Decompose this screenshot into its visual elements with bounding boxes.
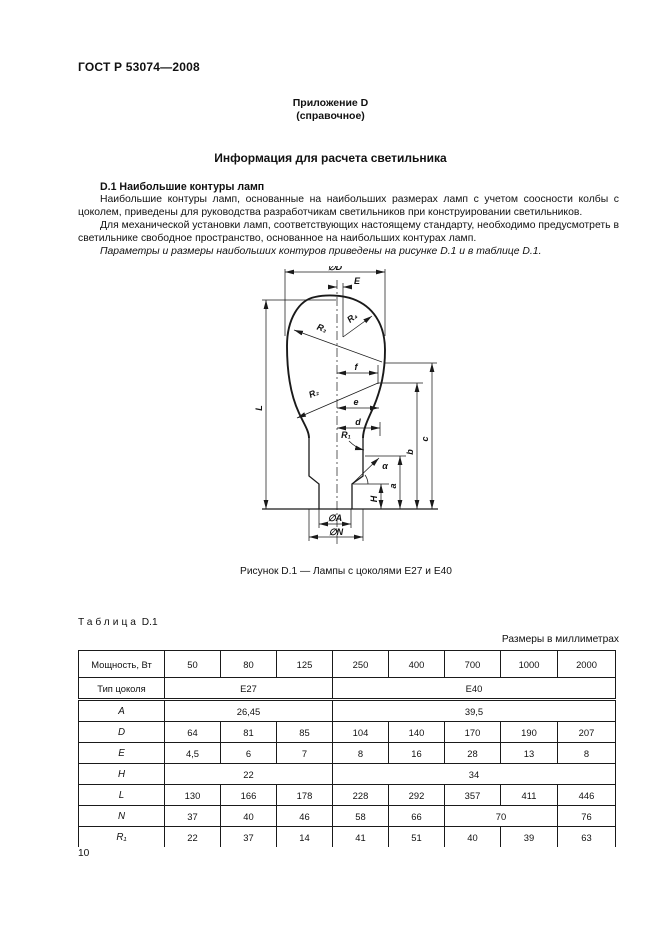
table-cell: 2000 [558,651,616,678]
row-label: H [79,764,165,785]
table-cell: 207 [558,722,616,743]
row-label: A [79,700,165,722]
table-cell: 446 [558,785,616,806]
row-label: Тип цоколя [79,678,165,700]
table-cell: 28 [445,743,501,764]
dim-label-d: d [355,417,361,427]
dim-label-r4: R₄ [345,310,359,324]
table-row: L130166178228292357411446 [79,785,616,806]
table-cell: 125 [277,651,333,678]
annex-type: (справочное) [0,110,661,123]
body-text: Наибольшие контуры ламп, основанные на н… [78,193,619,258]
table-cell: 8 [333,743,389,764]
dim-label-diameter-d: ∅D [328,266,343,272]
table-cell: 41 [333,827,389,848]
table-cell: 228 [333,785,389,806]
table-cell: 22 [165,827,221,848]
table-cell: 76 [558,806,616,827]
table-cell: 85 [277,722,333,743]
table-cell: 357 [445,785,501,806]
table-cell: 1000 [501,651,558,678]
table-cell: 400 [389,651,445,678]
table-cell: 26,45 [165,700,333,722]
table-cell: 39 [501,827,558,848]
dim-table-body: Мощность, Вт508012525040070010002000Тип … [79,651,616,848]
annex-block: Приложение D (справочное) [0,97,661,123]
table-cell: 8 [558,743,616,764]
table-cell: 39,5 [333,700,616,722]
table-row: H2234 [79,764,616,785]
page-title: Информация для расчета светильника [0,151,661,165]
table-cell: 37 [165,806,221,827]
figure-caption: Рисунок D.1 — Лампы с цоколями Е27 и Е40 [0,566,661,577]
table-cell: 4,5 [165,743,221,764]
table-title: Таблица D.1 [78,617,158,628]
dim-label-e: е [353,397,358,407]
row-label: R₁ [79,827,165,848]
table-cell: 64 [165,722,221,743]
dim-label-a: a [388,483,398,488]
table-cell: 190 [501,722,558,743]
row-label: D [79,722,165,743]
table-cell: 7 [277,743,333,764]
table-row: Мощность, Вт508012525040070010002000 [79,651,616,678]
dim-label-h: H [369,495,379,502]
table-cell: 166 [221,785,277,806]
table-cell: 63 [558,827,616,848]
dim-label-r1: R₁ [341,430,351,440]
table-cell: 37 [221,827,277,848]
dim-label-alpha: α [382,461,388,471]
table-cell: 34 [333,764,616,785]
lamp-outline-drawing: ∅D E R₄ R₃ f R₂ е d R₁ α H a b c L ∅A ∅N [235,266,525,562]
standard-number: ГОСТ Р 53074—2008 [78,60,200,74]
paragraph-1: Наибольшие контуры ламп, основанные на н… [78,193,619,219]
table-cell: 80 [221,651,277,678]
table-cell: 22 [165,764,333,785]
table-row: A26,4539,5 [79,700,616,722]
dim-label-diameter-a: ∅A [328,513,342,523]
table-cell: 170 [445,722,501,743]
table-cell: 51 [389,827,445,848]
dim-label-f: f [355,362,359,372]
table-row: E4,56781628138 [79,743,616,764]
dim-label-c: c [420,436,430,441]
table-units-note: Размеры в миллиметрах [78,634,619,645]
table-cell: 16 [389,743,445,764]
document-page: ГОСТ Р 53074—2008 Приложение D (справочн… [0,0,661,936]
row-label: N [79,806,165,827]
table-cell: 6 [221,743,277,764]
table-cell: 700 [445,651,501,678]
table-cell: 40 [445,827,501,848]
table-row: Тип цоколяЕ27Е40 [79,678,616,700]
table-cell: 411 [501,785,558,806]
table-cell: 40 [221,806,277,827]
table-cell: 104 [333,722,389,743]
dim-label-l: L [254,405,264,411]
section-heading: D.1 Наибольшие контуры ламп [100,181,264,193]
table-cell: Е27 [165,678,333,700]
dim-label-b: b [405,449,415,455]
table-cell: 81 [221,722,277,743]
table-title-word: Таблица [78,617,139,628]
row-label: Мощность, Вт [79,651,165,678]
dim-label-e-offset: E [354,276,361,286]
figure-drawing: ∅D E R₄ R₃ f R₂ е d R₁ α H a b c L ∅A ∅N [235,266,525,562]
table-cell: 250 [333,651,389,678]
table-row: N37404658667076 [79,806,616,827]
table-cell: Е40 [333,678,616,700]
dimension-table: Мощность, Вт508012525040070010002000Тип … [78,650,616,847]
table-cell: 66 [389,806,445,827]
table-cell: 70 [445,806,558,827]
table-row: D648185104140170190207 [79,722,616,743]
neck-and-cap-outline [309,438,363,509]
dim-label-r3: R₃ [316,322,329,335]
annex-label: Приложение D [0,97,661,110]
dim-label-r2: R₂ [307,386,321,399]
paragraph-3: Параметры и размеры наибольших контуров … [78,245,619,258]
table-cell: 13 [501,743,558,764]
dimension-lines [266,272,432,537]
table-cell: 292 [389,785,445,806]
table-cell: 140 [389,722,445,743]
dim-label-diameter-n: ∅N [329,527,344,537]
table-row: R₁2237144151403963 [79,827,616,848]
page-number: 10 [78,848,89,859]
table-cell: 46 [277,806,333,827]
table-cell: 14 [277,827,333,848]
paragraph-2: Для механической установки ламп, соответ… [78,219,619,245]
row-label: E [79,743,165,764]
extension-lines [262,269,437,541]
alpha-angle-lines [352,458,379,484]
table-cell: 58 [333,806,389,827]
row-label: L [79,785,165,806]
table-title-number: D.1 [142,617,158,628]
table-cell: 50 [165,651,221,678]
table-cell: 178 [277,785,333,806]
table-cell: 130 [165,785,221,806]
